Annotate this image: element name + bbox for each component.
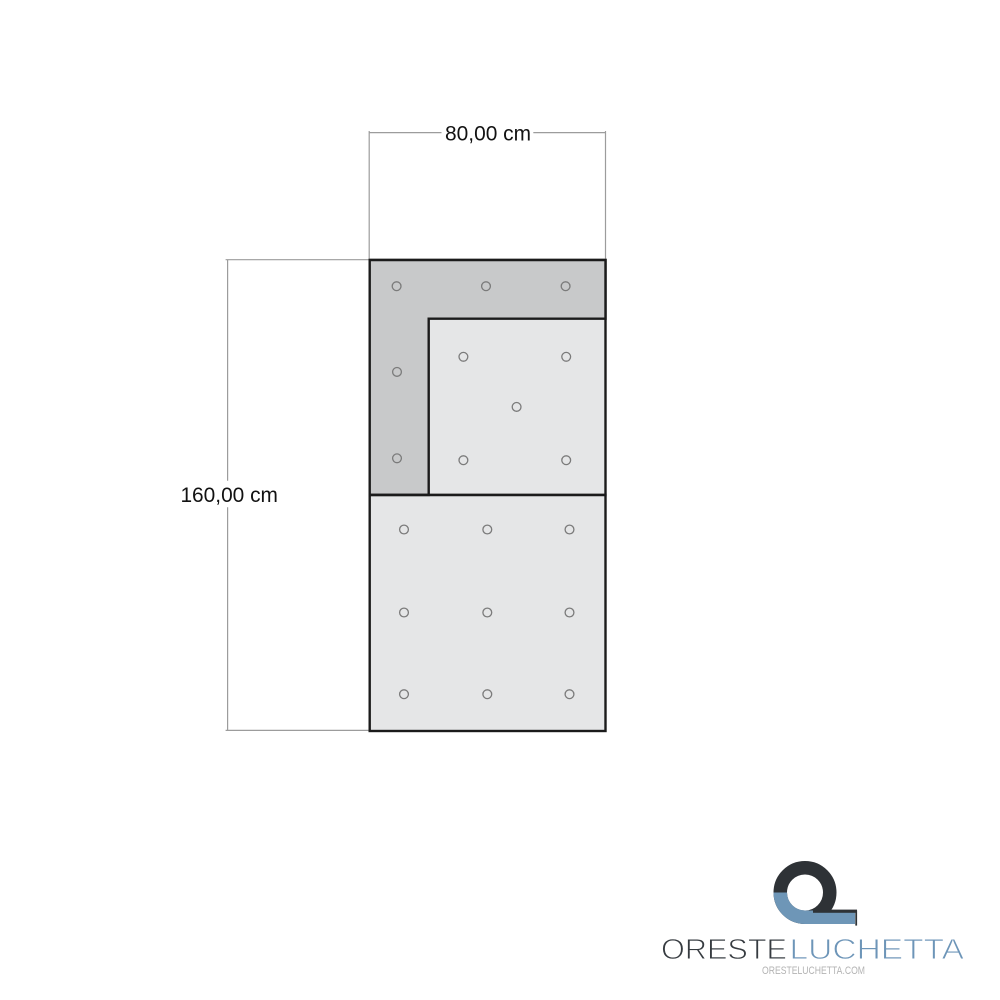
svg-text:ORESTELUCHETTA.COM: ORESTELUCHETTA.COM [762, 965, 865, 977]
svg-text:80,00 cm: 80,00 cm [445, 121, 531, 145]
svg-text:ORESTE: ORESTE [661, 934, 787, 966]
svg-text:160,00 cm: 160,00 cm [180, 483, 278, 507]
svg-text:LUCHETTA: LUCHETTA [790, 934, 965, 966]
